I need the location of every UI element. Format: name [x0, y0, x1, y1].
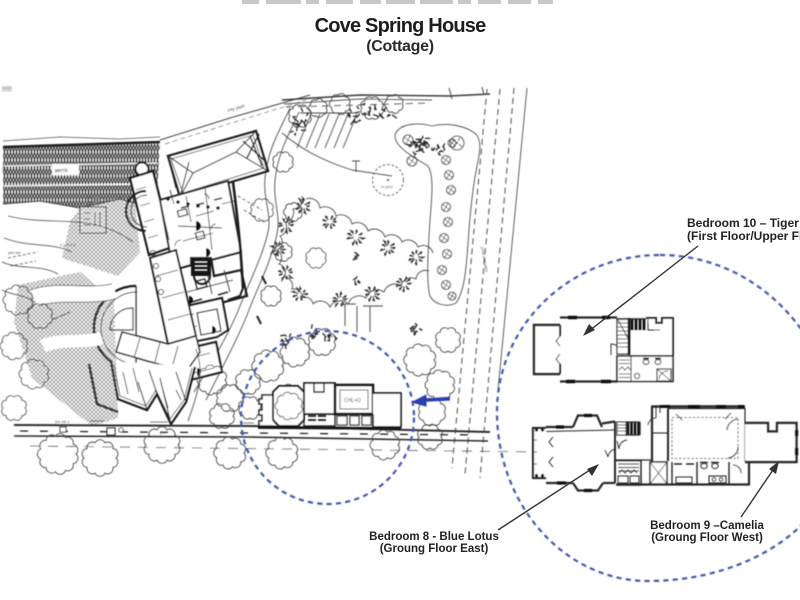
svg-text:s y m z y: s y m z y: [60, 242, 76, 247]
svg-text:ymw zkty wkm: ymw zkty wkm: [480, 246, 490, 273]
svg-text:▒▒▒: ▒▒▒: [2, 86, 12, 92]
svg-text:mty ytwk: mty ytwk: [227, 103, 246, 113]
svg-text:ym wk z: ym wk z: [55, 419, 69, 424]
svg-text:xx yyxxz: xx yyxxz: [381, 185, 393, 189]
svg-text:y z: y z: [160, 430, 165, 435]
svg-text:CHL+O: CHL+O: [344, 398, 361, 404]
svg-text:yz: yz: [55, 168, 59, 173]
svg-text:ytm wk: ytm wk: [8, 250, 20, 255]
